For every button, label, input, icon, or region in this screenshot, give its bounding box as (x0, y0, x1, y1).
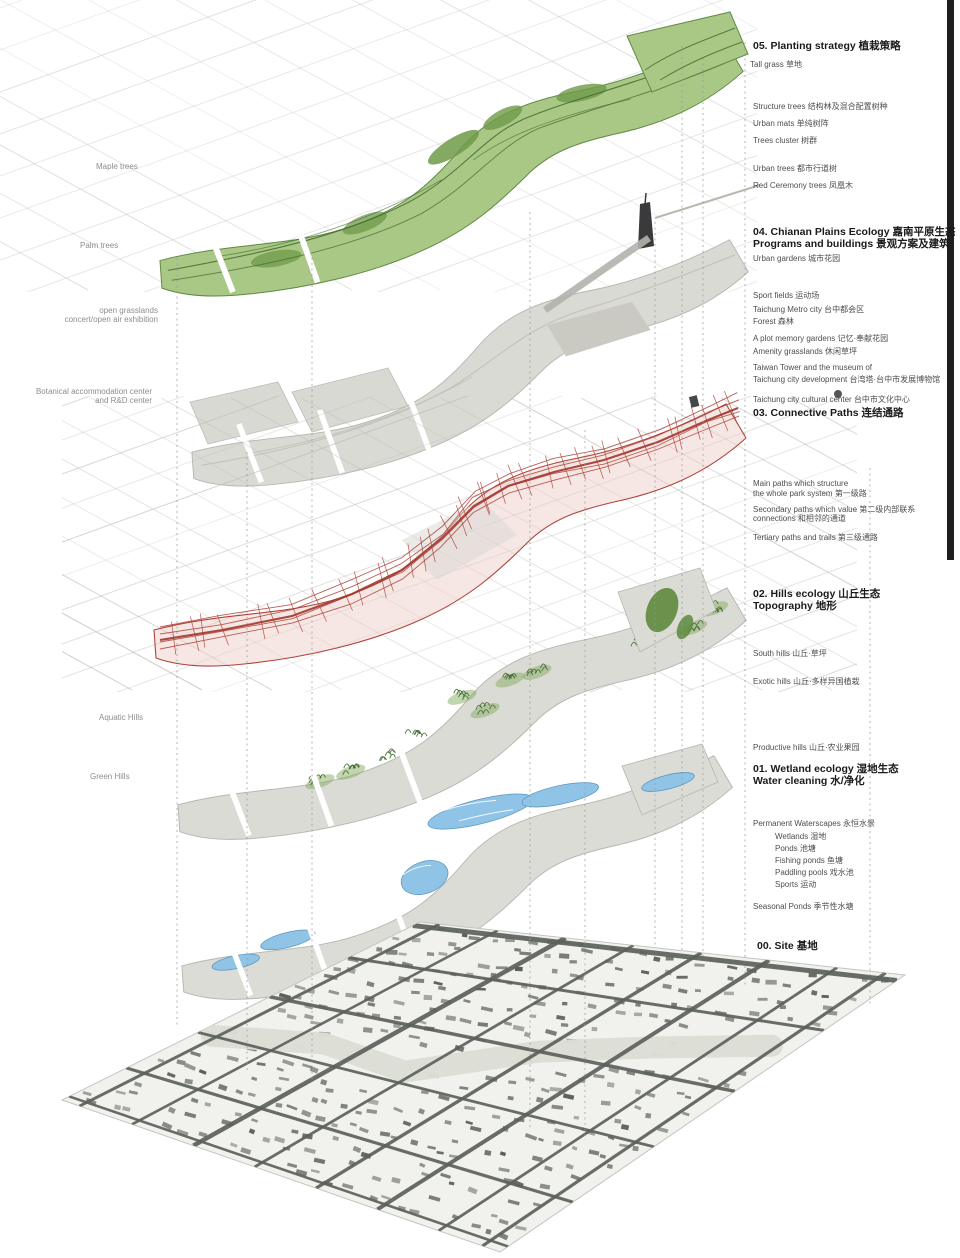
exploded-axon-diagram: 05. Planting strategy 植栽策略 Tall grass 草地… (0, 0, 960, 1258)
layer-01-subtitle: Water cleaning 水/净化 (753, 773, 865, 788)
label-green-hills: Green Hills (90, 772, 130, 781)
layer-04-note-1: Sport fields 运动场 (753, 290, 819, 301)
layer-04-note-8: Taichung city cultural center 台中市文化中心 (753, 394, 910, 405)
layer-01-note-0: Permanent Waterscapes 永恒水景 (753, 818, 875, 829)
label-open-grasslands-2: concert/open air exhibition (18, 315, 158, 324)
layer-03-note-0: Main paths which structure (753, 479, 848, 488)
label-open-grasslands-1: open grasslands (18, 306, 158, 315)
layer-04-note-6: Taiwan Tower and the museum of (753, 363, 872, 372)
layer-05-note-2: Urban mats 单纯树阵 (753, 118, 829, 129)
layer-03-note-1: the whole park system 第一级路 (753, 488, 867, 499)
layer-03-note-4: Tertiary paths and trails 第三级通路 (753, 532, 878, 543)
layer-05-note-0: Tall grass 草地 (750, 59, 802, 70)
layer-04-note-2: Taichung Metro city 台中都会区 (753, 304, 864, 315)
layer-01-note-4: Paddling pools 戏水池 (775, 867, 854, 878)
layer-05-note-1: Structure trees 结构林及混合配置树种 (753, 101, 888, 112)
layer-04-note-5: Amenity grasslands 休闲草坪 (753, 346, 857, 357)
layer-02-note-0: South hills 山丘·草坪 (753, 648, 827, 659)
layer-04-subtitle: Programs and buildings 景观方案及建筑 (753, 236, 950, 251)
layer-04-note-0: Urban gardens 城市花园 (753, 253, 840, 264)
label-botanical-center-1: Botanical accommodation center (12, 387, 152, 396)
layer-02-note-1: Exotic hills 山丘·多样异国植栽 (753, 676, 860, 687)
layer-01-note-2: Ponds 池塘 (775, 843, 816, 854)
layer-01-note-1: Wetlands 湿地 (775, 831, 826, 842)
layer-01-note-5: Sports 运动 (775, 879, 816, 890)
layer-04-note-4: A plot memory gardens 记忆·奉献花园 (753, 333, 888, 344)
layer-02-note-2: Productive hills 山丘·农业果园 (753, 742, 860, 753)
layer-04-note-3: Forest 森林 (753, 316, 794, 327)
label-botanical-center-2: and R&D center (12, 396, 152, 405)
layer-03-title: 03. Connective Paths 连结通路 (753, 405, 904, 420)
planting-street-grid (0, 0, 960, 554)
layer-05-note-3: Trees cluster 树群 (753, 135, 817, 146)
layer-05-note-5: Red Ceremony trees 凤凰木 (753, 180, 853, 191)
scan-edge-bar (947, 0, 954, 560)
label-maple-trees: Maple trees (96, 162, 138, 171)
layer-01-note-3: Fishing ponds 鱼塘 (775, 855, 843, 866)
layer-05-note-4: Urban trees 都市行道树 (753, 163, 837, 174)
layer-02-subtitle: Topography 地形 (753, 598, 837, 613)
layer-04-note-7: Taichung city development 台湾塔·台中市发展博物馆 (753, 374, 940, 385)
label-palm-trees: Palm trees (80, 241, 118, 250)
layer-05-title: 05. Planting strategy 植栽策略 (753, 38, 901, 53)
label-aquatic-hills: Aquatic Hills (99, 713, 143, 722)
layer-00-title: 00. Site 基地 (757, 938, 818, 953)
layer-01-note-6: Seasonal Ponds 季节性水塘 (753, 901, 854, 912)
layer-03-note-3: connections 和相邻的通道 (753, 513, 846, 524)
